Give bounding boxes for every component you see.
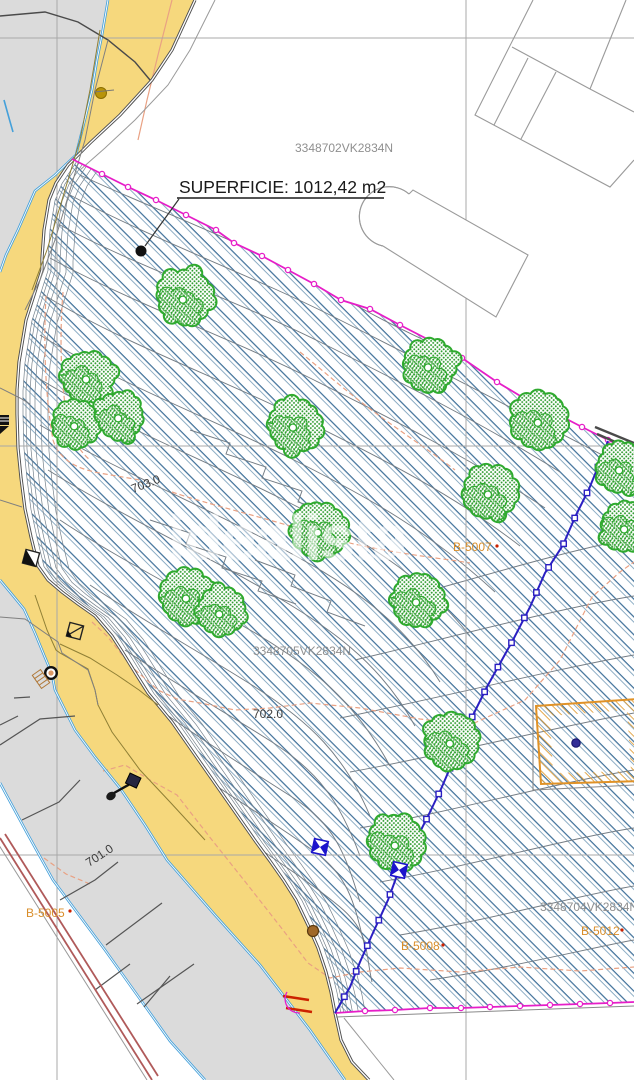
- svg-text:SUPERFICIE: 1012,42 m2: SUPERFICIE: 1012,42 m2: [179, 177, 386, 197]
- svg-text:B-5012: B-5012: [581, 924, 620, 938]
- svg-text:3348702VK2834N: 3348702VK2834N: [295, 141, 393, 155]
- svg-text:3348704VK2834N: 3348704VK2834N: [540, 900, 634, 914]
- svg-text:702.0: 702.0: [253, 707, 283, 721]
- svg-text:idealista: idealista: [168, 502, 409, 574]
- svg-text:3348705VK2834N: 3348705VK2834N: [253, 644, 351, 658]
- svg-text:B-5008: B-5008: [401, 939, 440, 953]
- svg-text:B-5007: B-5007: [453, 540, 492, 554]
- svg-text:B-5005: B-5005: [26, 906, 65, 920]
